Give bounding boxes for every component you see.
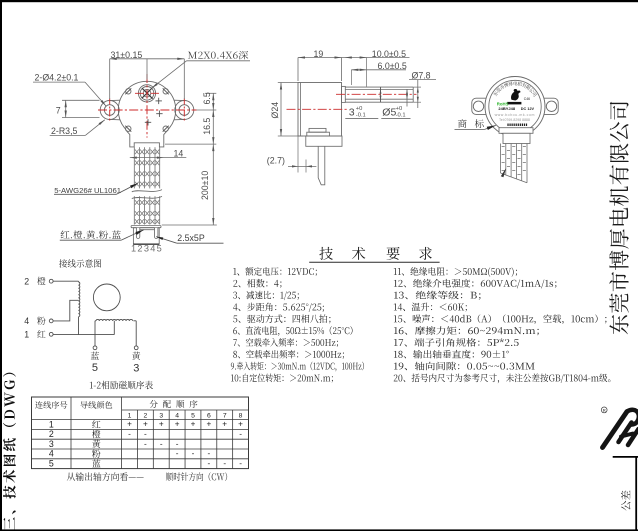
svg-text:2.5x5P: 2.5x5P bbox=[177, 233, 205, 243]
svg-text:Tel:0769-8298 8888: Tel:0769-8298 8888 bbox=[499, 118, 530, 122]
svg-text:-0.1: -0.1 bbox=[356, 113, 366, 119]
svg-text:10.0±0.5: 10.0±0.5 bbox=[372, 49, 406, 59]
svg-text:DC 12V: DC 12V bbox=[521, 107, 535, 111]
svg-text:+: + bbox=[159, 420, 164, 429]
svg-text:Ø7.8: Ø7.8 bbox=[412, 70, 431, 80]
svg-text:7: 7 bbox=[56, 105, 61, 115]
svg-text:4: 4 bbox=[24, 316, 29, 326]
svg-text:16.5: 16.5 bbox=[202, 118, 212, 135]
svg-text:+: + bbox=[206, 420, 211, 429]
svg-text:+: + bbox=[238, 420, 243, 429]
svg-text:19: 19 bbox=[314, 49, 324, 59]
svg-text:4: 4 bbox=[49, 449, 54, 459]
svg-text:1: 1 bbox=[128, 412, 132, 419]
svg-text:-0.1: -0.1 bbox=[396, 113, 406, 119]
svg-text:5: 5 bbox=[191, 412, 195, 419]
svg-text:6.5: 6.5 bbox=[202, 92, 212, 104]
svg-text:8: 8 bbox=[239, 412, 243, 419]
svg-text:6.0±0.5: 6.0±0.5 bbox=[378, 61, 407, 71]
svg-text:Ø24: Ø24 bbox=[270, 102, 280, 119]
svg-text:+0: +0 bbox=[356, 106, 363, 112]
svg-text:-: - bbox=[128, 430, 131, 439]
svg-text:+: + bbox=[191, 420, 196, 429]
svg-text:-: - bbox=[223, 459, 226, 468]
svg-text:31±0.15: 31±0.15 bbox=[111, 50, 143, 60]
svg-text:12345: 12345 bbox=[131, 243, 163, 253]
svg-text:-: - bbox=[192, 449, 195, 458]
svg-text:(2.7): (2.7) bbox=[267, 155, 285, 165]
svg-text:5: 5 bbox=[92, 362, 98, 374]
svg-text:www.bohou-mk.com: www.bohou-mk.com bbox=[495, 113, 535, 117]
svg-text:+: + bbox=[127, 420, 132, 429]
svg-text:3: 3 bbox=[133, 363, 139, 375]
svg-text:-: - bbox=[144, 430, 147, 439]
svg-text:1: 1 bbox=[49, 419, 54, 429]
svg-text:R: R bbox=[603, 408, 606, 413]
svg-text:1: 1 bbox=[24, 330, 29, 340]
svg-text:-: - bbox=[144, 439, 147, 448]
svg-text:2: 2 bbox=[24, 276, 29, 286]
svg-text:-: - bbox=[176, 449, 179, 458]
svg-text:C46: C46 bbox=[524, 97, 530, 101]
svg-text:5: 5 bbox=[49, 459, 54, 469]
svg-text:2-Ø4.2±0.1: 2-Ø4.2±0.1 bbox=[35, 72, 79, 82]
svg-text:24BYJ48: 24BYJ48 bbox=[498, 106, 515, 111]
svg-text:2: 2 bbox=[143, 412, 147, 419]
svg-text:6: 6 bbox=[207, 412, 211, 419]
svg-text:-: - bbox=[207, 459, 210, 468]
svg-text:3: 3 bbox=[349, 106, 355, 118]
svg-text:14: 14 bbox=[174, 148, 184, 158]
svg-text:+: + bbox=[222, 420, 227, 429]
svg-text:Ø5: Ø5 bbox=[382, 106, 396, 118]
svg-text:-: - bbox=[160, 439, 163, 448]
svg-text:3: 3 bbox=[49, 439, 54, 449]
svg-text:4: 4 bbox=[175, 412, 179, 419]
svg-text:-: - bbox=[207, 449, 210, 458]
svg-text:+: + bbox=[175, 420, 180, 429]
svg-text:2: 2 bbox=[49, 429, 54, 439]
svg-text:5-AWG26# UL1061: 5-AWG26# UL1061 bbox=[54, 186, 121, 195]
svg-text:7: 7 bbox=[223, 412, 227, 419]
svg-text:-: - bbox=[239, 459, 242, 468]
svg-text:3: 3 bbox=[159, 412, 163, 419]
svg-text:+0: +0 bbox=[396, 106, 403, 112]
svg-text:200±10: 200±10 bbox=[200, 171, 210, 200]
svg-text:2-R3,5: 2-R3,5 bbox=[51, 126, 78, 136]
svg-text:-: - bbox=[239, 430, 242, 439]
svg-text:-: - bbox=[176, 439, 179, 448]
svg-text:+: + bbox=[143, 420, 148, 429]
